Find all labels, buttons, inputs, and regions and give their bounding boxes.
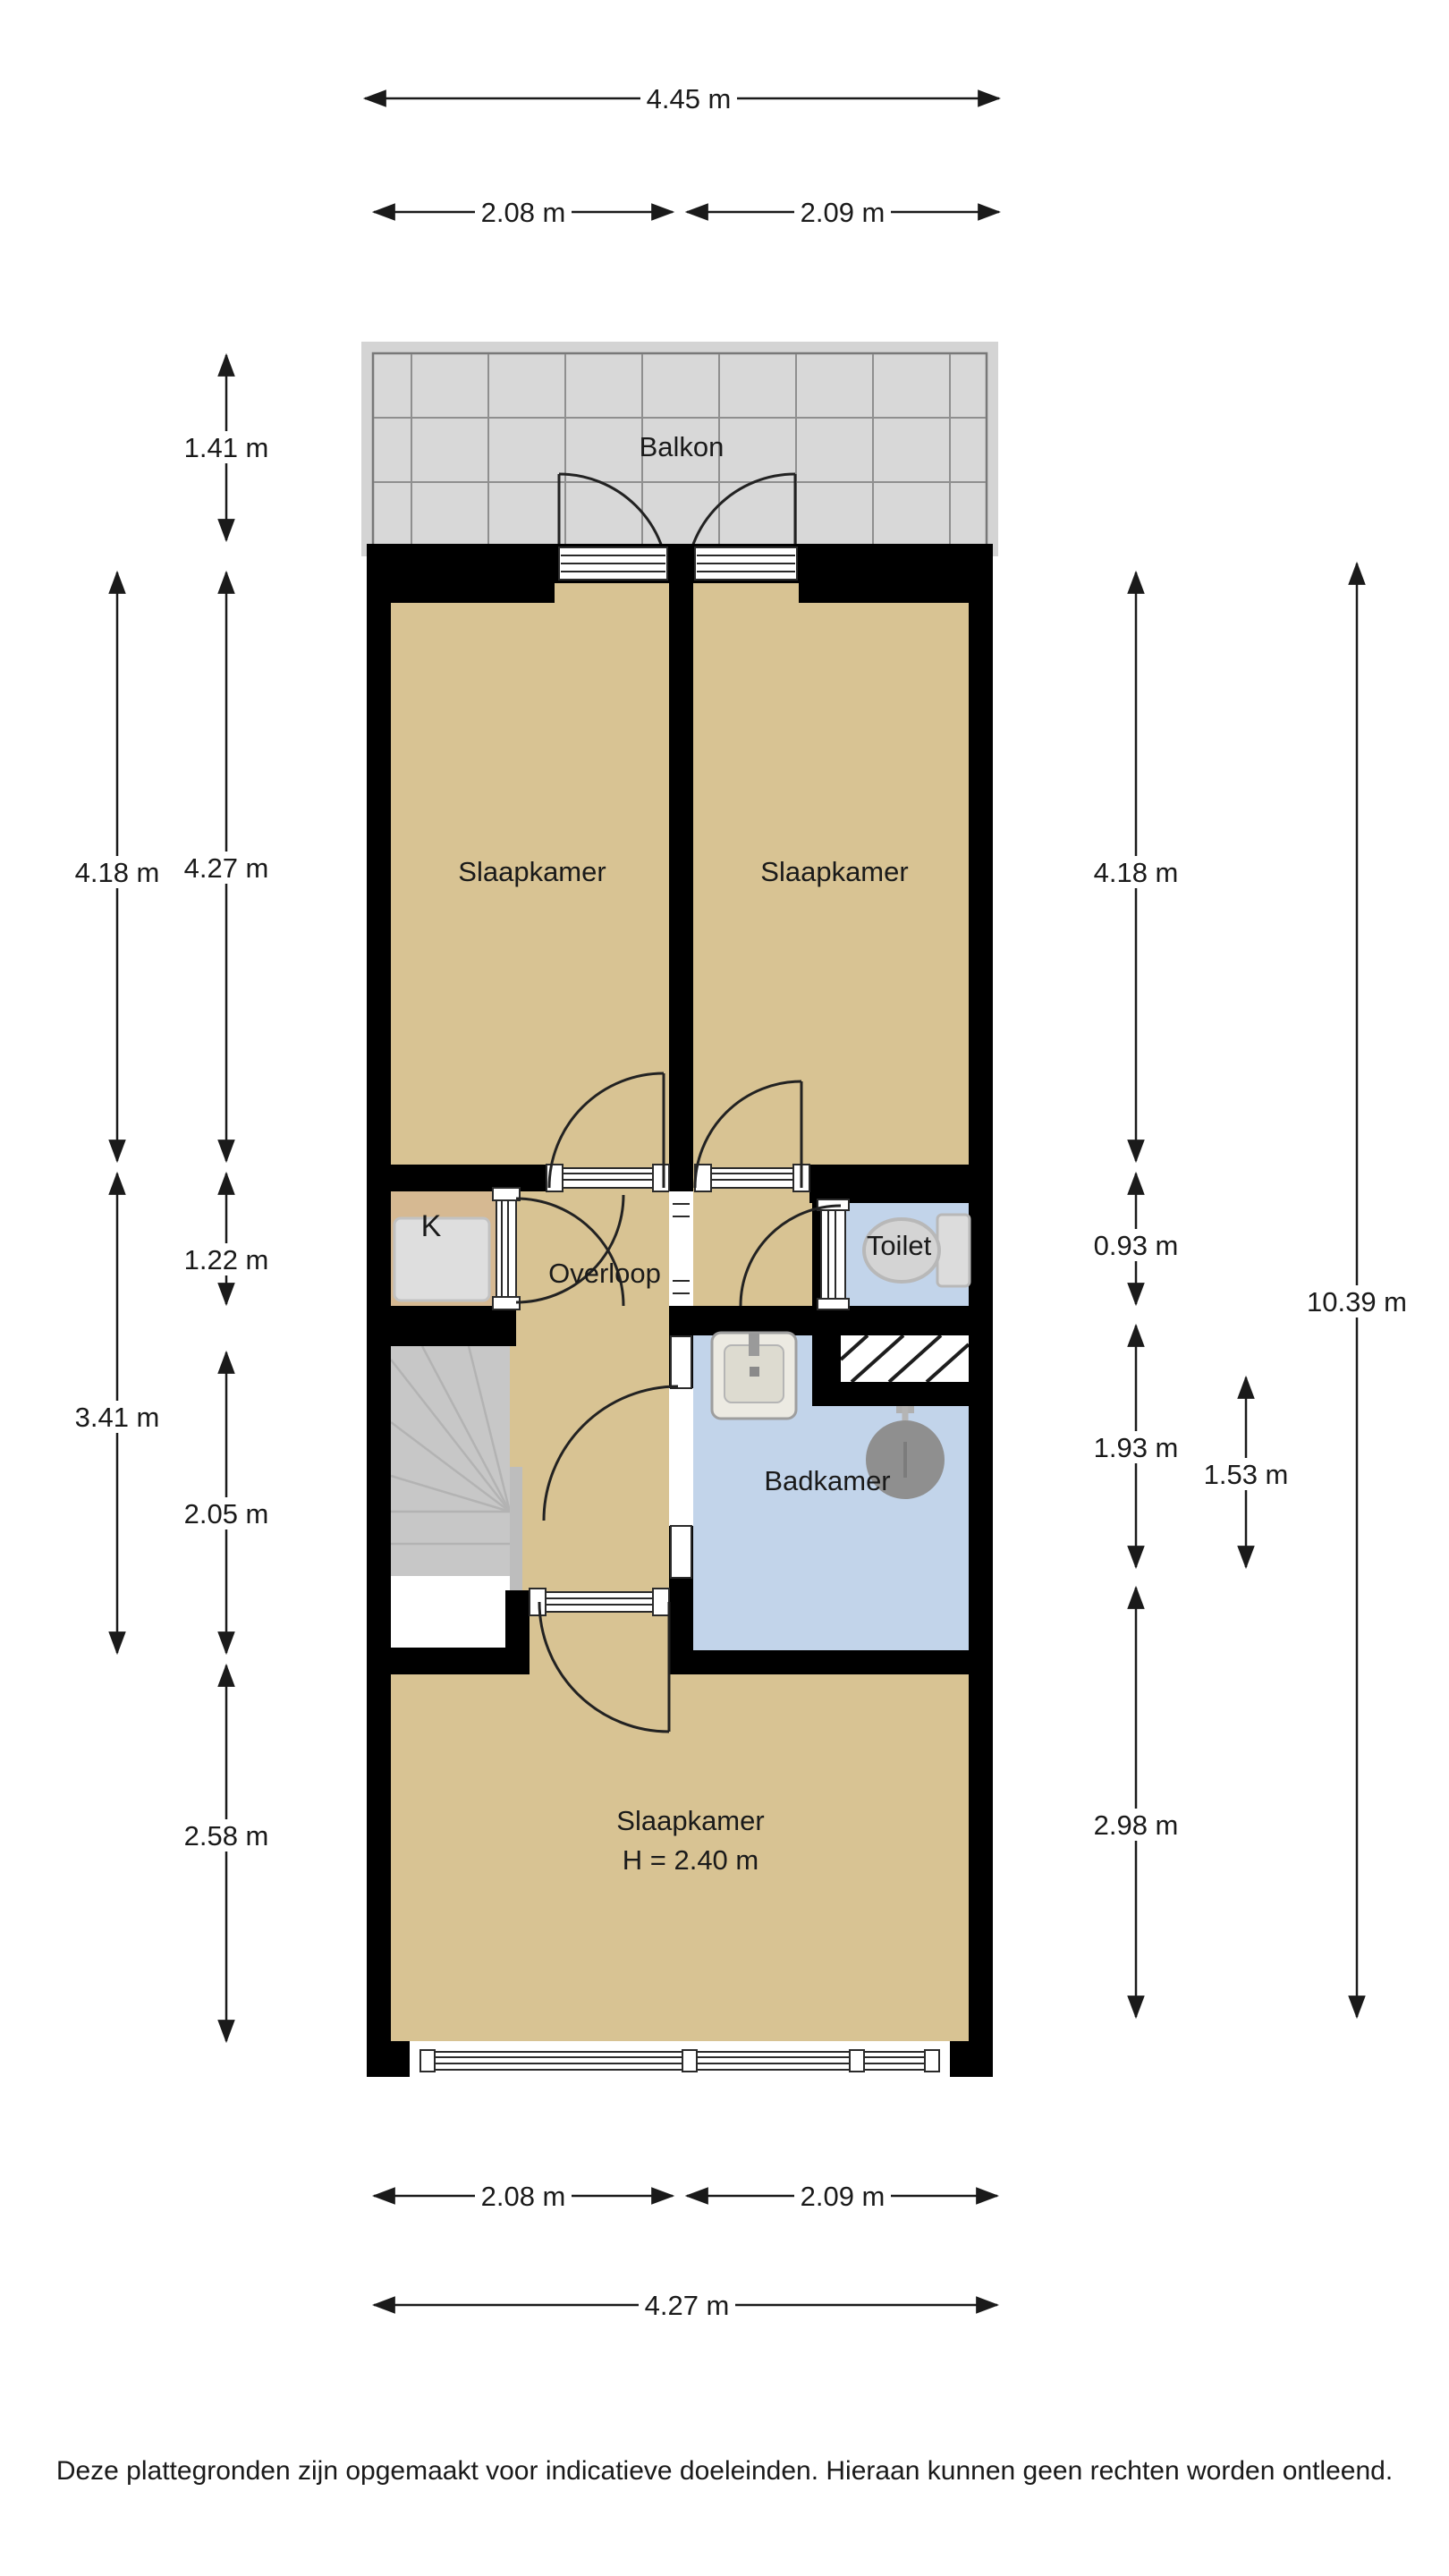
wall-segment — [367, 544, 391, 2077]
wall-segment — [812, 1382, 993, 1406]
stair-void — [391, 1576, 510, 1648]
wall-segment — [391, 1165, 547, 1191]
sink-icon — [712, 1333, 796, 1419]
dimension-label: 2.58 m — [184, 1820, 269, 1851]
dimension-label: 0.93 m — [1094, 1230, 1179, 1261]
balcony-door-right — [695, 547, 797, 580]
room-label-overloop: Overloop — [548, 1258, 661, 1289]
dimension-top-total: 4.45 m — [365, 82, 999, 114]
dimension-label: 2.09 m — [801, 2181, 885, 2212]
dimension-bottom-right: 2.09 m — [687, 2180, 997, 2212]
dimension-balcony-depth: 1.41 m — [178, 355, 275, 540]
room-label-slaapkamer-right: Slaapkamer — [760, 856, 908, 887]
dimension-label: 2.08 m — [481, 197, 566, 228]
dimension-label: 2.05 m — [184, 1498, 269, 1529]
dimension-label: 1.53 m — [1204, 1459, 1289, 1490]
wall-segment — [799, 544, 993, 603]
wall-segment — [669, 544, 693, 1191]
dimension-label: 4.18 m — [75, 857, 160, 888]
dimension-label: 1.93 m — [1094, 1432, 1179, 1463]
wall-segment — [809, 1165, 993, 1203]
dimension-label: 2.08 m — [481, 2181, 566, 2212]
dimension-label: 10.39 m — [1307, 1286, 1407, 1318]
dimension-right-top: 4.18 m — [1088, 572, 1184, 1161]
dimension-bottom-total: 4.27 m — [374, 2289, 997, 2321]
stair-handrail — [510, 1467, 522, 1590]
dimension-left-inner-top: 4.27 m — [178, 572, 275, 1161]
hatched-closet-area — [841, 1335, 969, 1382]
dimension-left-outer-mid: 3.41 m — [69, 1174, 165, 1653]
stairs-icon — [391, 1346, 522, 1648]
dimension-bottom-left: 2.08 m — [374, 2180, 673, 2212]
wall-segment — [812, 1203, 821, 1306]
dimension-right-bath-inner: 1.53 m — [1198, 1377, 1294, 1567]
dimension-left-inner-bottom: 2.58 m — [178, 1665, 275, 2041]
dimension-top-right: 2.09 m — [687, 196, 999, 228]
dimension-left-outer-top: 4.18 m — [69, 572, 165, 1161]
dimension-right-total: 10.39 m — [1296, 563, 1418, 2017]
room-label-toilet: Toilet — [867, 1230, 932, 1261]
wall-segment — [367, 544, 555, 603]
overloop-open-passage — [669, 1191, 693, 1306]
dimension-label: 1.41 m — [184, 432, 269, 463]
room-label-ceiling-height: H = 2.40 m — [623, 1844, 759, 1876]
floor-plan-page: Balkon — [0, 0, 1449, 2576]
window-bottom — [367, 2041, 993, 2077]
dimension-label: 1.22 m — [184, 1244, 269, 1275]
dimension-right-bath: 1.93 m — [1088, 1326, 1184, 1567]
room-label-badkamer: Badkamer — [764, 1465, 890, 1496]
room-label-slaapkamer-bottom: Slaapkamer — [616, 1805, 764, 1836]
dimension-label: 4.27 m — [645, 2290, 730, 2321]
dimension-right-bottom: 2.98 m — [1088, 1588, 1184, 2017]
balcony-door-left — [559, 547, 667, 580]
dimension-left-inner-low: 2.05 m — [178, 1352, 275, 1653]
dimension-label: 4.45 m — [647, 83, 732, 114]
dimension-top-left: 2.08 m — [374, 196, 673, 228]
dimension-label: 4.18 m — [1094, 857, 1179, 888]
wall-segment — [367, 1648, 530, 1674]
wall-segment — [505, 1590, 530, 1674]
room-label-slaapkamer-left: Slaapkamer — [458, 856, 606, 887]
dimension-label: 2.98 m — [1094, 1809, 1179, 1841]
floor-plan: Balkon — [0, 0, 1449, 2576]
dimension-label: 2.09 m — [801, 197, 885, 228]
dimension-right-toilet: 0.93 m — [1088, 1174, 1184, 1304]
dimension-left-inner-mid: 1.22 m — [178, 1174, 275, 1304]
dimension-label: 3.41 m — [75, 1402, 160, 1433]
closet-appliance-icon — [394, 1218, 489, 1301]
disclaimer-text: Deze plattegronden zijn opgemaakt voor i… — [56, 2456, 1393, 2486]
dimension-label: 4.27 m — [184, 852, 269, 884]
wall-segment — [669, 1650, 993, 1674]
room-label-balkon: Balkon — [640, 431, 724, 462]
room-label-closet: K — [421, 1209, 442, 1243]
wall-segment — [391, 1306, 516, 1346]
